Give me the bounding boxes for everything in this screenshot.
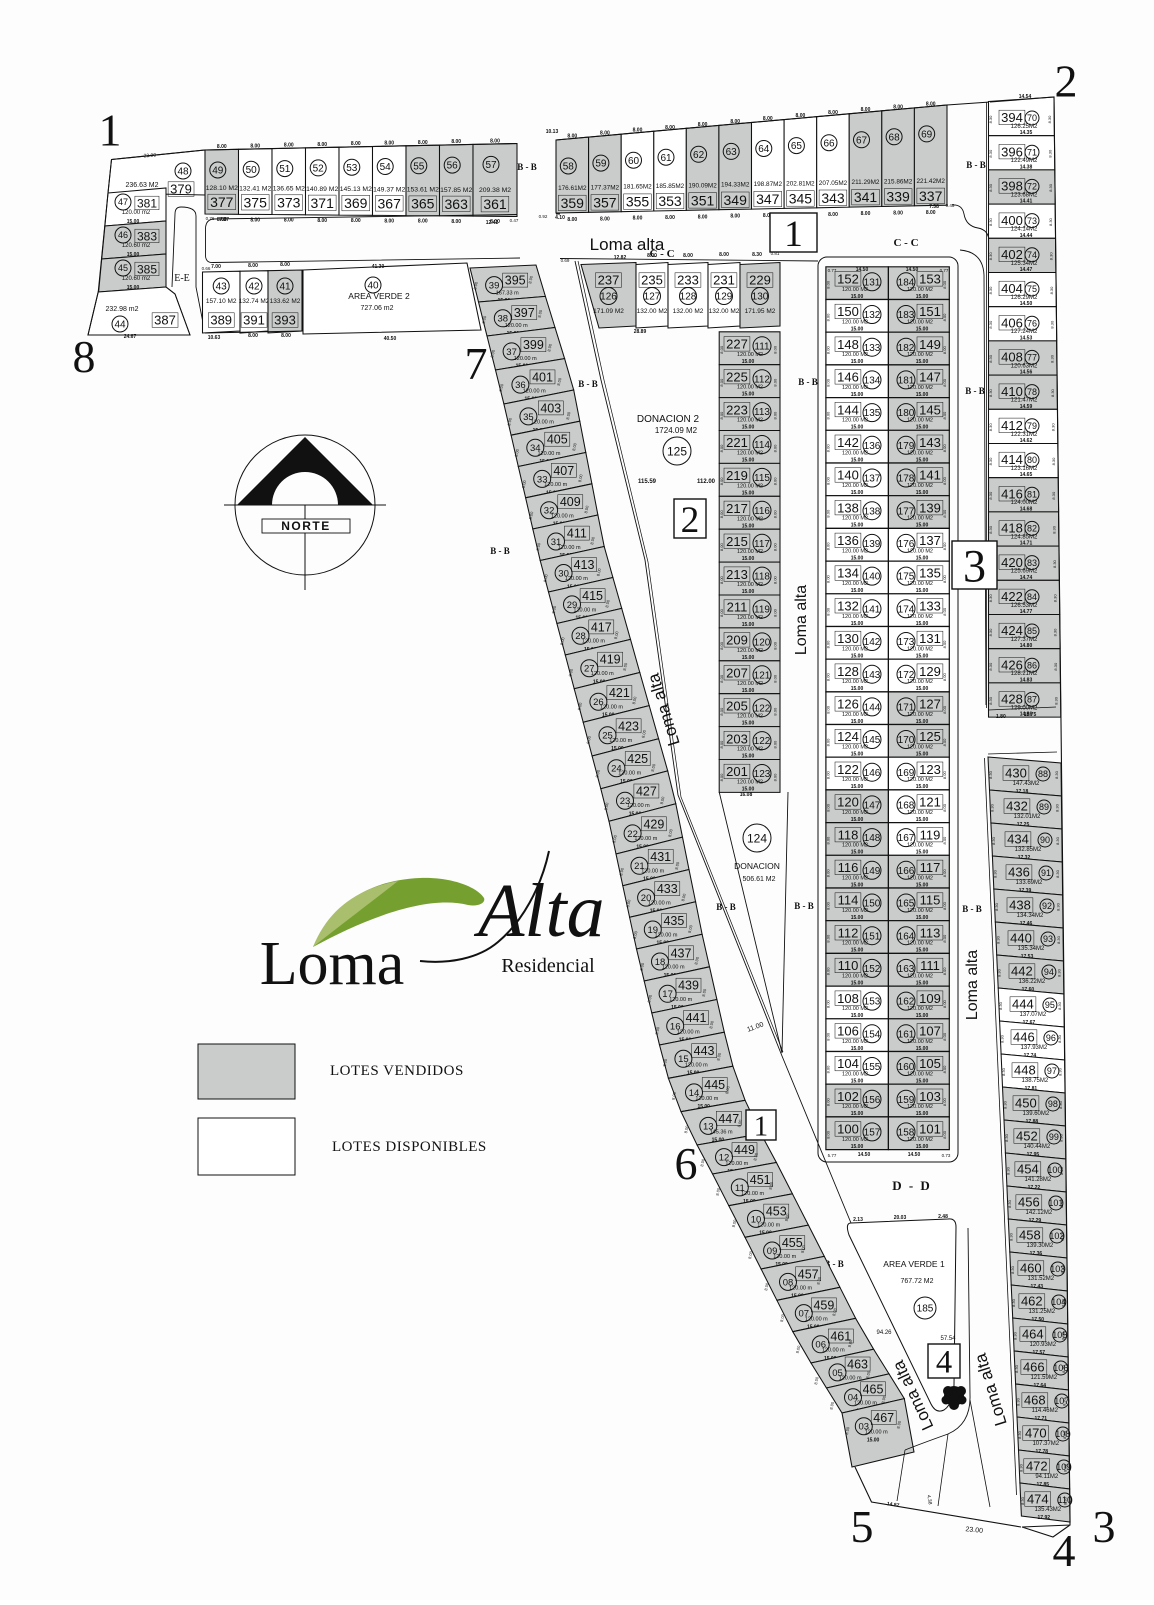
svg-text:8.00: 8.00 xyxy=(773,444,778,453)
svg-text:435: 435 xyxy=(663,914,684,928)
svg-text:8.00: 8.00 xyxy=(942,803,947,812)
svg-text:111: 111 xyxy=(920,958,940,973)
svg-text:396: 396 xyxy=(1001,144,1023,159)
svg-text:104: 104 xyxy=(837,1056,859,1071)
svg-text:467: 467 xyxy=(873,1411,894,1425)
svg-text:120.00 m: 120.00 m xyxy=(551,513,574,519)
svg-text:C - C: C - C xyxy=(893,237,918,249)
svg-text:136.22M2: 136.22M2 xyxy=(1019,979,1046,985)
svg-text:437: 437 xyxy=(671,946,692,960)
svg-text:120.00 M2: 120.00 M2 xyxy=(907,777,933,783)
svg-text:8.30: 8.30 xyxy=(1052,559,1057,568)
svg-text:15.00: 15.00 xyxy=(742,523,755,529)
svg-text:12.82: 12.82 xyxy=(614,255,627,261)
svg-text:207.05M2: 207.05M2 xyxy=(819,180,848,187)
svg-text:8.30: 8.30 xyxy=(1055,869,1060,878)
svg-text:8.00: 8.00 xyxy=(698,214,708,220)
svg-text:15.00: 15.00 xyxy=(742,458,755,464)
svg-text:124: 124 xyxy=(747,831,767,845)
svg-text:120.00 M2: 120.00 M2 xyxy=(842,843,868,849)
svg-text:120.00 m: 120.00 m xyxy=(558,545,581,551)
svg-text:77: 77 xyxy=(1027,353,1037,363)
svg-text:15.00: 15.00 xyxy=(851,686,864,692)
svg-text:120.00 m: 120.00 m xyxy=(741,1191,764,1197)
svg-text:1: 1 xyxy=(784,214,803,255)
svg-text:132.74 M2: 132.74 M2 xyxy=(239,298,270,305)
svg-text:8.00: 8.00 xyxy=(773,608,778,617)
svg-text:416: 416 xyxy=(1001,486,1023,501)
svg-text:8.00: 8.00 xyxy=(665,215,675,221)
svg-text:6: 6 xyxy=(675,1138,698,1189)
svg-text:120.00 M2: 120.00 M2 xyxy=(907,745,933,751)
svg-text:125: 125 xyxy=(919,729,941,744)
svg-text:8.00: 8.00 xyxy=(719,575,724,584)
svg-text:400: 400 xyxy=(1001,213,1023,228)
svg-text:128.10 M2: 128.10 M2 xyxy=(206,185,238,192)
svg-text:85: 85 xyxy=(1027,626,1037,636)
svg-text:367: 367 xyxy=(378,195,402,211)
svg-text:B - B: B - B xyxy=(962,904,982,914)
svg-text:8.30: 8.30 xyxy=(1056,902,1061,911)
svg-text:8.30: 8.30 xyxy=(1062,1397,1067,1406)
svg-text:8.00: 8.00 xyxy=(719,378,724,387)
svg-text:406: 406 xyxy=(1001,315,1023,330)
svg-text:8.00: 8.00 xyxy=(773,674,778,683)
svg-text:7.00: 7.00 xyxy=(211,264,221,270)
svg-text:8.00: 8.00 xyxy=(826,313,831,322)
svg-text:B - B: B - B xyxy=(578,379,598,389)
svg-text:120.00 M2: 120.00 M2 xyxy=(907,614,933,620)
svg-text:120.00 m: 120.00 m xyxy=(600,704,623,710)
svg-text:43: 43 xyxy=(216,282,228,293)
svg-text:100: 100 xyxy=(837,1122,859,1137)
svg-text:52: 52 xyxy=(313,164,325,175)
svg-text:401: 401 xyxy=(532,370,553,384)
svg-text:8.00: 8.00 xyxy=(826,836,831,845)
svg-text:8.30: 8.30 xyxy=(1051,457,1056,466)
svg-text:144: 144 xyxy=(837,402,859,417)
svg-text:0.69: 0.69 xyxy=(561,258,570,263)
svg-text:3: 3 xyxy=(1093,1501,1116,1552)
svg-text:198.87M2: 198.87M2 xyxy=(754,181,783,188)
svg-text:15.00: 15.00 xyxy=(742,754,755,760)
svg-text:221: 221 xyxy=(726,435,748,450)
svg-text:8.30: 8.30 xyxy=(1061,1364,1066,1373)
svg-text:15.00: 15.00 xyxy=(916,1144,929,1150)
svg-text:120.00 M2: 120.00 M2 xyxy=(842,745,868,751)
svg-text:506.61 M2: 506.61 M2 xyxy=(742,876,775,883)
svg-text:45: 45 xyxy=(118,263,128,273)
svg-text:8.30: 8.30 xyxy=(988,491,993,500)
svg-text:438: 438 xyxy=(1009,898,1031,913)
svg-text:74: 74 xyxy=(1027,250,1037,260)
svg-text:418: 418 xyxy=(1001,521,1023,536)
svg-text:15.00: 15.00 xyxy=(742,655,755,661)
svg-text:120.00 M2: 120.00 M2 xyxy=(907,548,933,554)
svg-text:40: 40 xyxy=(367,281,379,292)
svg-text:8.30: 8.30 xyxy=(1054,803,1059,812)
svg-text:69: 69 xyxy=(921,130,933,141)
svg-text:122: 122 xyxy=(754,703,771,714)
svg-text:8.00: 8.00 xyxy=(826,1098,831,1107)
svg-text:8.00: 8.00 xyxy=(942,313,947,322)
svg-text:15.00: 15.00 xyxy=(916,523,929,529)
svg-text:8.00: 8.00 xyxy=(942,1065,947,1074)
svg-text:79: 79 xyxy=(1027,421,1037,431)
svg-text:B - B: B - B xyxy=(965,386,985,396)
svg-text:4: 4 xyxy=(936,1345,952,1381)
svg-text:8.00: 8.00 xyxy=(826,542,831,551)
svg-text:441: 441 xyxy=(686,1011,707,1025)
svg-text:120.00 m: 120.00 m xyxy=(648,900,671,906)
svg-text:120.00 M2: 120.00 M2 xyxy=(842,810,868,816)
svg-text:3: 3 xyxy=(963,541,986,592)
svg-text:120.00 M2: 120.00 M2 xyxy=(737,714,763,720)
svg-text:141: 141 xyxy=(919,468,941,483)
svg-text:137: 137 xyxy=(919,533,941,548)
svg-text:107: 107 xyxy=(919,1024,941,1039)
svg-text:1: 1 xyxy=(754,1110,768,1142)
svg-text:8.30: 8.30 xyxy=(1060,1265,1065,1274)
svg-text:8.30: 8.30 xyxy=(1050,423,1055,432)
svg-text:7.58: 7.58 xyxy=(929,204,939,210)
svg-text:50: 50 xyxy=(246,165,258,176)
svg-text:120.00 m: 120.00 m xyxy=(641,868,664,874)
svg-text:55: 55 xyxy=(413,161,425,172)
svg-text:127.24M2: 127.24M2 xyxy=(1011,329,1038,335)
svg-text:8: 8 xyxy=(73,331,96,382)
svg-text:121: 121 xyxy=(919,795,941,810)
svg-text:120.00 M2: 120.00 M2 xyxy=(842,908,868,914)
svg-text:LOTES VENDIDOS: LOTES VENDIDOS xyxy=(330,1063,464,1079)
svg-text:112: 112 xyxy=(754,374,770,385)
svg-text:8.30: 8.30 xyxy=(997,968,1002,977)
svg-text:8.30: 8.30 xyxy=(1048,183,1053,192)
svg-text:113: 113 xyxy=(920,925,941,940)
svg-text:44: 44 xyxy=(114,320,126,331)
svg-text:8.30: 8.30 xyxy=(1003,1100,1008,1109)
svg-text:8.30: 8.30 xyxy=(988,252,993,261)
svg-text:8.00: 8.00 xyxy=(826,999,831,1008)
svg-text:7: 7 xyxy=(465,338,488,389)
svg-text:145.36 m: 145.36 m xyxy=(710,1130,733,1136)
svg-text:138: 138 xyxy=(837,500,859,515)
svg-text:8.00: 8.00 xyxy=(826,411,831,420)
svg-text:15.00: 15.00 xyxy=(742,721,755,727)
svg-text:120.00 m: 120.00 m xyxy=(805,1317,828,1323)
svg-text:67: 67 xyxy=(856,135,868,146)
svg-text:121.59M2: 121.59M2 xyxy=(1030,1375,1057,1381)
svg-text:8.00: 8.00 xyxy=(719,252,729,258)
svg-text:229: 229 xyxy=(749,273,771,288)
svg-text:15.00: 15.00 xyxy=(851,752,864,758)
svg-text:15.00: 15.00 xyxy=(916,1013,929,1019)
svg-text:207: 207 xyxy=(726,666,748,681)
svg-text:12.42: 12.42 xyxy=(486,220,499,226)
svg-text:138.75M2: 138.75M2 xyxy=(1022,1078,1049,1084)
svg-text:15.00: 15.00 xyxy=(916,654,929,660)
svg-text:15.00: 15.00 xyxy=(742,589,755,595)
svg-text:120.00 M2: 120.00 M2 xyxy=(907,1137,933,1143)
svg-text:14.50: 14.50 xyxy=(906,267,919,273)
svg-text:8.00: 8.00 xyxy=(942,934,947,943)
svg-text:98: 98 xyxy=(1048,1099,1058,1109)
svg-text:2: 2 xyxy=(1055,55,1078,106)
svg-text:132.00 M2: 132.00 M2 xyxy=(637,308,668,315)
svg-text:391: 391 xyxy=(243,313,265,328)
svg-text:157.85 M2: 157.85 M2 xyxy=(440,187,472,194)
svg-text:8.00: 8.00 xyxy=(773,543,778,552)
svg-text:8.00: 8.00 xyxy=(942,1130,947,1139)
svg-text:123: 123 xyxy=(754,769,771,780)
svg-text:177.37M2: 177.37M2 xyxy=(591,184,620,191)
svg-text:B - B: B - B xyxy=(966,160,986,170)
svg-text:8.30: 8.30 xyxy=(1052,594,1057,603)
svg-text:112.00: 112.00 xyxy=(697,479,716,485)
svg-text:8.00: 8.00 xyxy=(861,211,871,217)
svg-text:171.09 M2: 171.09 M2 xyxy=(593,308,624,315)
svg-text:120.00 M2: 120.00 M2 xyxy=(842,450,868,456)
svg-text:140.44M2: 140.44M2 xyxy=(1024,1144,1051,1150)
svg-text:15.00: 15.00 xyxy=(742,556,755,562)
svg-text:LOTES DISPONIBLES: LOTES DISPONIBLES xyxy=(332,1139,487,1155)
svg-text:120.00 m: 120.00 m xyxy=(865,1429,888,1435)
svg-text:120.00 M2: 120.00 M2 xyxy=(907,712,933,718)
svg-text:2.13: 2.13 xyxy=(853,1217,863,1223)
svg-text:15.00: 15.00 xyxy=(742,622,755,628)
svg-text:120.00 M2: 120.00 M2 xyxy=(907,385,933,391)
svg-text:142.12M2: 142.12M2 xyxy=(1026,1210,1053,1216)
svg-text:10.13: 10.13 xyxy=(546,129,559,135)
svg-text:8.00: 8.00 xyxy=(826,607,831,616)
svg-text:381: 381 xyxy=(137,196,157,210)
svg-text:8.30: 8.30 xyxy=(988,423,993,432)
svg-text:120.00 M2: 120.00 M2 xyxy=(907,418,933,424)
svg-text:120.00 M2: 120.00 M2 xyxy=(907,1104,933,1110)
svg-text:8.00: 8.00 xyxy=(248,263,258,269)
svg-text:0.73: 0.73 xyxy=(942,1153,951,1158)
svg-text:123: 123 xyxy=(919,762,941,777)
svg-text:379: 379 xyxy=(170,182,192,197)
svg-text:122: 122 xyxy=(754,736,771,747)
svg-text:458: 458 xyxy=(1019,1228,1041,1243)
svg-text:8.00: 8.00 xyxy=(418,219,428,225)
svg-text:463: 463 xyxy=(847,1358,868,1372)
svg-text:133.62 M2: 133.62 M2 xyxy=(270,298,301,305)
svg-text:120.00 M2: 120.00 M2 xyxy=(907,843,933,849)
svg-text:237: 237 xyxy=(598,273,620,288)
svg-text:68: 68 xyxy=(889,132,901,143)
svg-text:8.30: 8.30 xyxy=(1051,491,1056,500)
svg-text:20.03: 20.03 xyxy=(894,1215,907,1221)
svg-text:16.08: 16.08 xyxy=(740,792,753,798)
svg-text:8.00: 8.00 xyxy=(773,740,778,749)
svg-text:120.00 M2: 120.00 M2 xyxy=(842,1039,868,1045)
svg-text:430: 430 xyxy=(1005,766,1027,781)
svg-text:127: 127 xyxy=(644,292,661,303)
svg-text:124.85M2: 124.85M2 xyxy=(1011,534,1038,540)
svg-text:81: 81 xyxy=(1027,489,1037,499)
svg-text:0.92: 0.92 xyxy=(539,214,548,219)
svg-text:106: 106 xyxy=(837,1024,859,1039)
svg-text:123.68M2: 123.68M2 xyxy=(1011,192,1038,198)
svg-text:8.30: 8.30 xyxy=(1019,1463,1024,1472)
svg-text:8.00: 8.00 xyxy=(773,641,778,650)
svg-text:460: 460 xyxy=(1020,1261,1042,1276)
svg-text:8.00: 8.00 xyxy=(773,411,778,420)
svg-text:120.00 M2: 120.00 M2 xyxy=(842,614,868,620)
svg-text:101: 101 xyxy=(919,1122,941,1137)
svg-text:129: 129 xyxy=(919,664,941,679)
svg-text:8.00: 8.00 xyxy=(942,999,947,1008)
svg-text:470: 470 xyxy=(1025,1426,1047,1441)
svg-text:8.30: 8.30 xyxy=(1056,968,1061,977)
svg-text:8.00: 8.00 xyxy=(773,345,778,354)
svg-text:128.21M2: 128.21M2 xyxy=(1011,671,1038,677)
svg-text:8.00: 8.00 xyxy=(719,444,724,453)
svg-text:1724.09 M2: 1724.09 M2 xyxy=(655,426,698,435)
svg-text:365: 365 xyxy=(411,196,435,212)
svg-text:393: 393 xyxy=(274,313,296,328)
svg-text:NORTE: NORTE xyxy=(281,519,331,533)
svg-text:0.47: 0.47 xyxy=(510,218,519,223)
svg-text:116: 116 xyxy=(838,860,859,875)
svg-text:120.00 M2: 120.00 M2 xyxy=(907,450,933,456)
svg-text:132.41 M2: 132.41 M2 xyxy=(239,185,271,192)
svg-text:8.00: 8.00 xyxy=(942,705,947,714)
svg-text:8.30: 8.30 xyxy=(990,803,995,812)
svg-text:136: 136 xyxy=(837,533,859,548)
svg-text:120.00 m: 120.00 m xyxy=(662,965,685,971)
svg-text:120.00 m: 120.00 m xyxy=(523,388,546,394)
svg-text:15.00: 15.00 xyxy=(916,948,929,954)
svg-text:5.77: 5.77 xyxy=(828,1153,837,1158)
svg-text:107.37M2: 107.37M2 xyxy=(1032,1441,1059,1447)
svg-text:125.69M2: 125.69M2 xyxy=(1011,569,1038,575)
svg-text:120.00 M2: 120.00 M2 xyxy=(907,483,933,489)
svg-text:63: 63 xyxy=(726,147,738,158)
svg-text:4: 4 xyxy=(1053,1525,1076,1576)
svg-text:8.30: 8.30 xyxy=(1020,1496,1025,1505)
svg-text:Loma alta: Loma alta xyxy=(590,235,665,254)
svg-text:8.00: 8.00 xyxy=(942,738,947,747)
svg-text:15.00: 15.00 xyxy=(742,425,755,431)
svg-text:8.30: 8.30 xyxy=(998,1001,1003,1010)
svg-text:120: 120 xyxy=(754,638,771,649)
svg-text:Loma alta: Loma alta xyxy=(964,950,981,1020)
svg-text:120.00 M2: 120.00 M2 xyxy=(842,320,868,326)
svg-text:8.00: 8.00 xyxy=(942,607,947,616)
svg-text:120.00 M2: 120.00 M2 xyxy=(842,647,868,653)
svg-text:8.30: 8.30 xyxy=(988,696,993,705)
svg-text:0.77: 0.77 xyxy=(940,268,949,273)
svg-text:15.00: 15.00 xyxy=(851,784,864,790)
svg-text:436: 436 xyxy=(1008,865,1030,880)
svg-text:120.00 m: 120.00 m xyxy=(573,608,596,614)
svg-text:8.30: 8.30 xyxy=(1016,1397,1021,1406)
svg-text:120.00 M2: 120.00 M2 xyxy=(737,681,763,687)
svg-text:341: 341 xyxy=(854,189,878,205)
svg-text:83: 83 xyxy=(1027,558,1037,568)
svg-text:120.00 m: 120.00 m xyxy=(725,1161,748,1167)
svg-text:120.00 M2: 120.00 M2 xyxy=(907,908,933,914)
svg-text:413: 413 xyxy=(574,558,595,572)
svg-text:126.29M2: 126.29M2 xyxy=(1011,295,1038,301)
svg-text:120.00 M2: 120.00 M2 xyxy=(842,777,868,783)
svg-text:727.06 m2: 727.06 m2 xyxy=(360,305,393,312)
svg-text:120.00 M2: 120.00 M2 xyxy=(907,647,933,653)
svg-text:420: 420 xyxy=(1001,555,1023,570)
svg-text:8.30: 8.30 xyxy=(1017,1430,1022,1439)
svg-text:8.00: 8.00 xyxy=(280,262,290,268)
svg-text:8.30: 8.30 xyxy=(988,594,993,603)
svg-text:120.00 M2: 120.00 M2 xyxy=(737,780,763,786)
svg-text:157.10 M2: 157.10 M2 xyxy=(206,298,237,305)
svg-text:57.54: 57.54 xyxy=(940,1336,956,1342)
svg-text:103: 103 xyxy=(919,1089,941,1104)
svg-text:15.00: 15.00 xyxy=(851,621,864,627)
svg-text:49: 49 xyxy=(212,166,224,177)
svg-text:113: 113 xyxy=(754,407,770,418)
svg-text:464: 464 xyxy=(1022,1327,1044,1342)
svg-text:133: 133 xyxy=(919,598,941,613)
svg-text:8.00: 8.00 xyxy=(942,869,947,878)
svg-text:102: 102 xyxy=(837,1089,859,1104)
svg-text:124: 124 xyxy=(837,729,859,744)
svg-text:407: 407 xyxy=(553,464,574,478)
svg-text:8.00: 8.00 xyxy=(826,705,831,714)
svg-text:421: 421 xyxy=(609,686,630,700)
svg-text:76: 76 xyxy=(1027,318,1037,328)
svg-text:130: 130 xyxy=(752,292,769,303)
svg-text:114.46M2: 114.46M2 xyxy=(1032,1408,1059,1414)
svg-text:91: 91 xyxy=(1041,868,1051,878)
svg-text:8.00: 8.00 xyxy=(826,803,831,812)
svg-text:427: 427 xyxy=(636,785,657,799)
svg-text:120.00 M2: 120.00 M2 xyxy=(737,747,763,753)
svg-text:8.00: 8.00 xyxy=(942,542,947,551)
svg-text:8.30: 8.30 xyxy=(1050,354,1055,363)
svg-text:112: 112 xyxy=(838,925,859,940)
svg-text:8.30: 8.30 xyxy=(988,770,993,779)
svg-text:120.00 M2: 120.00 M2 xyxy=(737,582,763,588)
svg-text:8.30: 8.30 xyxy=(1049,252,1054,261)
svg-text:28.89: 28.89 xyxy=(634,329,647,335)
svg-text:125.34M2: 125.34M2 xyxy=(1011,261,1038,267)
svg-text:399: 399 xyxy=(523,338,544,352)
svg-text:122.31M2: 122.31M2 xyxy=(1011,432,1038,438)
svg-text:8.00: 8.00 xyxy=(828,212,838,218)
svg-text:120.00 M2: 120.00 M2 xyxy=(907,352,933,358)
svg-text:120.00 M2: 120.00 M2 xyxy=(907,941,933,947)
svg-text:E-E: E-E xyxy=(174,273,190,284)
svg-text:444: 444 xyxy=(1012,997,1034,1012)
svg-text:15.00: 15.00 xyxy=(851,1111,864,1117)
svg-text:8.30: 8.30 xyxy=(1058,1133,1063,1142)
svg-text:433: 433 xyxy=(657,882,678,896)
svg-text:190.09M2: 190.09M2 xyxy=(688,182,717,189)
svg-text:14.50: 14.50 xyxy=(908,1152,921,1158)
svg-text:15.00: 15.00 xyxy=(916,882,929,888)
svg-text:8.00: 8.00 xyxy=(826,280,831,289)
svg-text:8.00: 8.00 xyxy=(719,707,724,716)
svg-text:84: 84 xyxy=(1027,592,1037,602)
svg-text:120.00 M2: 120.00 M2 xyxy=(907,516,933,522)
svg-text:87: 87 xyxy=(1027,695,1037,705)
svg-text:56: 56 xyxy=(447,161,459,172)
svg-text:110: 110 xyxy=(838,958,859,973)
svg-text:117: 117 xyxy=(754,539,770,550)
